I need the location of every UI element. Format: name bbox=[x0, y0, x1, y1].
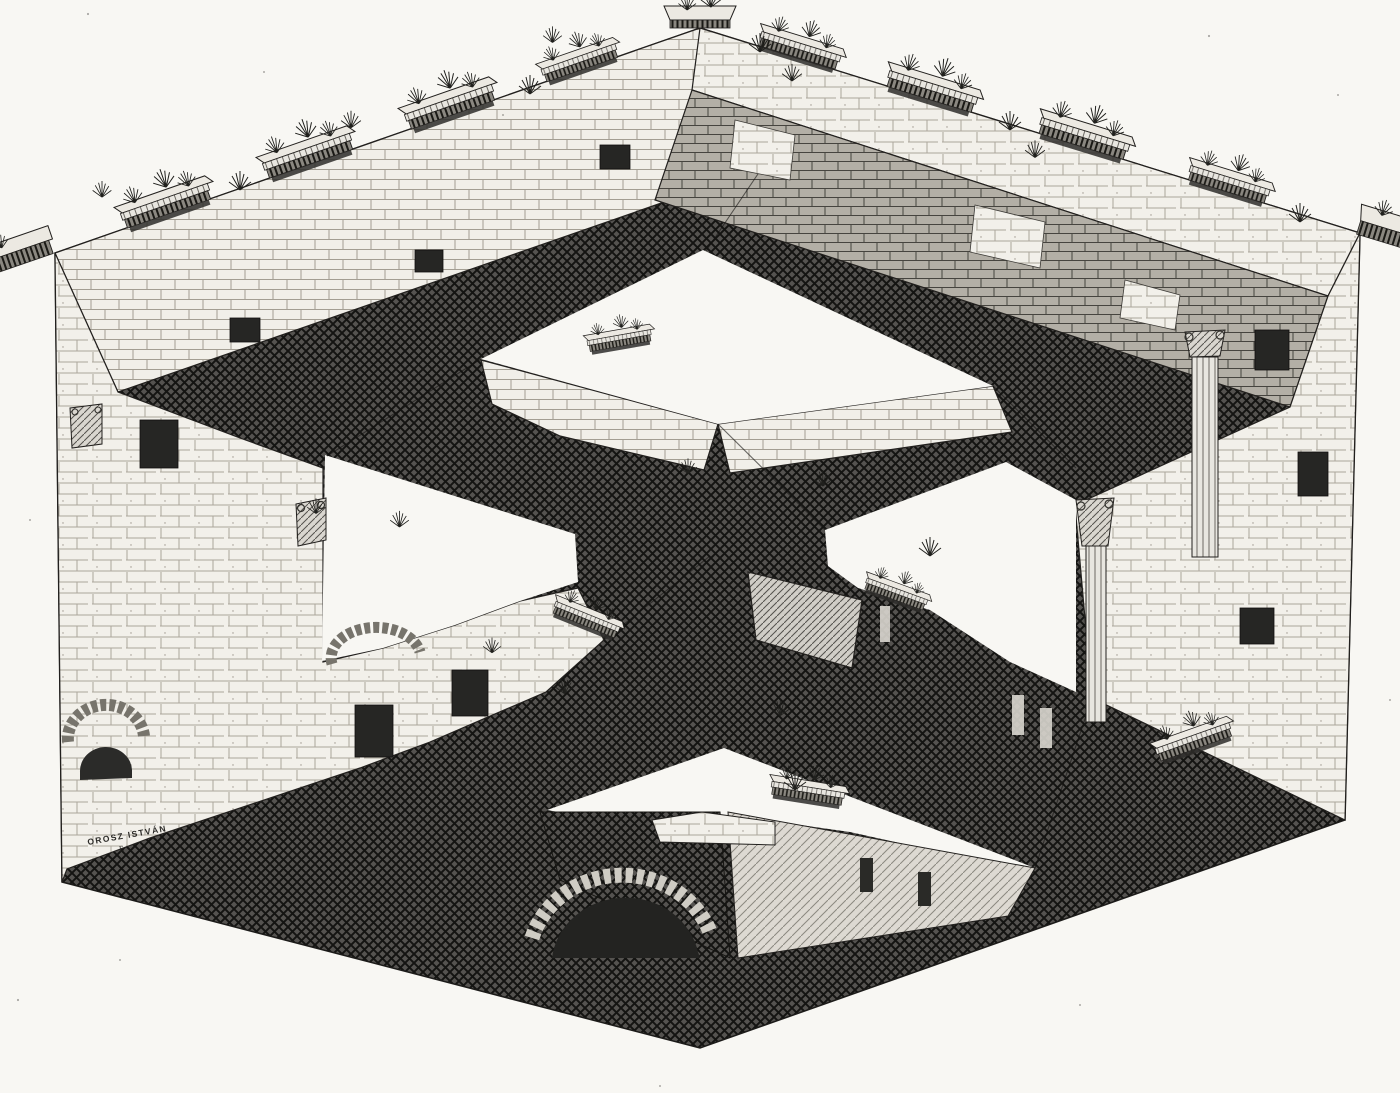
window-slit bbox=[860, 858, 873, 892]
light-slit bbox=[1012, 695, 1024, 735]
light-slit bbox=[880, 606, 890, 642]
window-ruin bbox=[1298, 452, 1328, 496]
masonry-gap bbox=[415, 250, 443, 272]
etching-impossible-ruin: OROSZ ISTVÁN E bbox=[0, 0, 1400, 1093]
window-ruin bbox=[355, 705, 393, 757]
masonry-gap bbox=[230, 318, 260, 342]
masonry-gap bbox=[600, 145, 630, 169]
window-ruin bbox=[452, 670, 488, 716]
drawing-canvas: OROSZ ISTVÁN E bbox=[0, 0, 1400, 1093]
window-ruin bbox=[140, 420, 178, 468]
pilaster-capital-outer-left bbox=[70, 404, 102, 448]
window-ruin bbox=[1240, 608, 1274, 644]
window-slit bbox=[918, 872, 931, 906]
light-slit bbox=[1040, 708, 1052, 748]
window-ruin bbox=[1255, 330, 1289, 370]
